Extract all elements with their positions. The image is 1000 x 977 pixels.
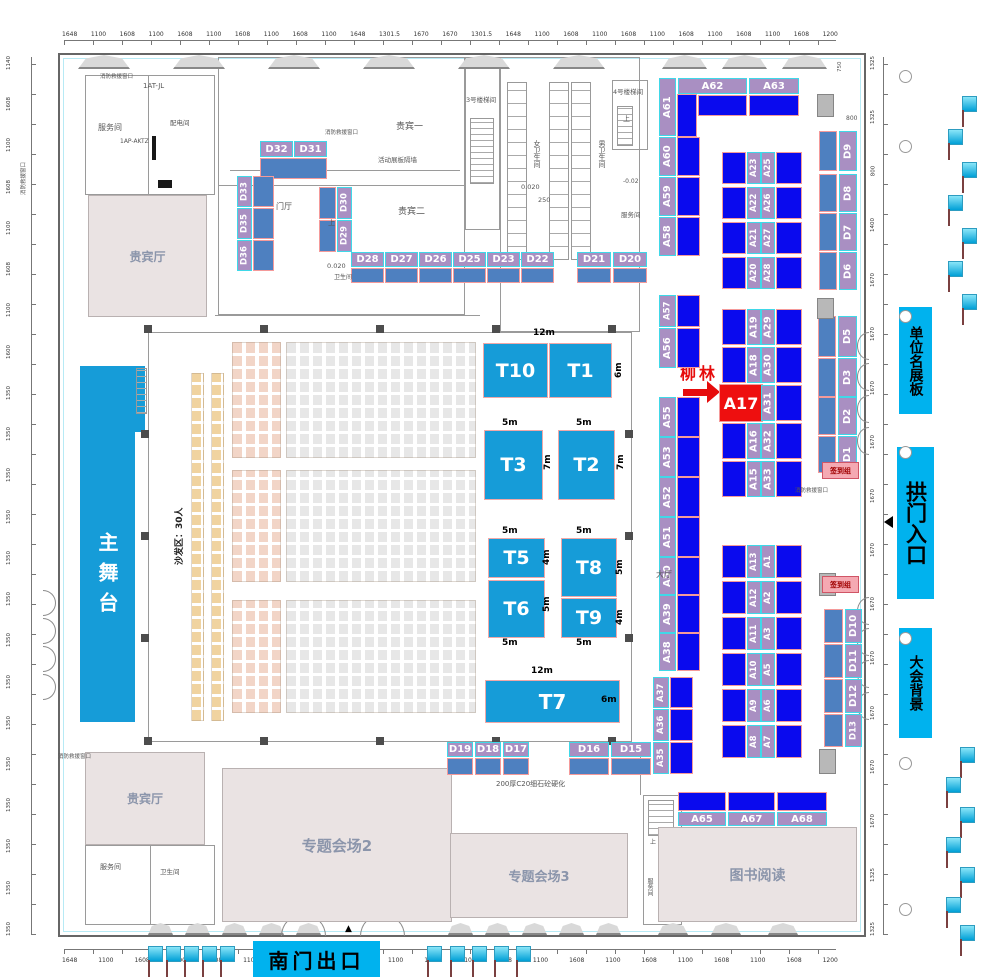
booth-A28[interactable]: A28 <box>761 257 775 289</box>
booth-A19[interactable]: A19 <box>747 309 761 345</box>
booth-fill <box>253 208 274 239</box>
booth-T5[interactable]: T5 <box>488 538 545 578</box>
annotation: 12m <box>533 329 555 338</box>
axis-bubble <box>899 632 912 645</box>
dimension-value: 1100 <box>264 31 279 38</box>
annotation: 服务间 <box>100 864 121 871</box>
booth-fill <box>722 152 746 184</box>
dimension-value: 1350 <box>6 386 12 400</box>
dimension-value: 1350 <box>6 839 12 853</box>
annotation: 女卫生间 <box>533 140 540 168</box>
special-hall-3-label: 专题会场3 <box>508 866 569 885</box>
sign-in-badge[interactable]: 签到组 <box>822 576 859 593</box>
annotation: 活动展板隔墙 <box>378 157 417 164</box>
dimension-value: 1100 <box>388 957 403 964</box>
booth-A25[interactable]: A25 <box>761 152 775 184</box>
dimension-value: 1608 <box>621 31 636 38</box>
arch-entrance-banner[interactable]: 拱门入口 <box>897 447 934 599</box>
booth-fill <box>722 257 746 289</box>
booth-A8[interactable]: A8 <box>747 725 761 758</box>
unit-board-banner: 单位名展板 <box>899 307 932 414</box>
booth-D17[interactable]: D17 <box>503 742 529 757</box>
booth-A1[interactable]: A1 <box>761 545 775 578</box>
dimension-value: 1400 <box>870 218 876 232</box>
wall-line <box>150 845 151 925</box>
booth-D11[interactable]: D11 <box>845 644 862 678</box>
booth-fill <box>722 545 746 578</box>
structural-column <box>625 532 633 540</box>
booth-fill <box>253 176 274 207</box>
dimension-value: 1350 <box>6 551 12 565</box>
booth-fill <box>677 557 700 595</box>
booth-fill <box>722 725 746 758</box>
seating-block <box>286 600 476 713</box>
booth-fill <box>722 309 746 345</box>
dimension-value: 1608 <box>177 31 192 38</box>
annotation: 5m <box>576 639 592 648</box>
booth-A21[interactable]: A21 <box>747 222 761 254</box>
annotation: 6m <box>601 696 617 705</box>
annotation: 5m <box>502 639 518 648</box>
dimension-value: 1100 <box>707 31 722 38</box>
dimension-value: 1301.5 <box>379 31 400 38</box>
booth-fill <box>351 268 384 283</box>
booth-fill <box>487 268 520 283</box>
booth-A20[interactable]: A20 <box>747 257 761 289</box>
booth-A5[interactable]: A5 <box>761 653 775 686</box>
booth-fill <box>670 677 693 708</box>
booth-D26[interactable]: D26 <box>419 252 452 267</box>
booth-fill <box>818 358 836 397</box>
dimension-value: 1350 <box>6 716 12 730</box>
dimension-value: 1600 <box>6 345 12 359</box>
booth-fill <box>319 187 336 219</box>
booth-fill <box>722 222 746 254</box>
main-stage-label: 主舞台 <box>93 532 122 622</box>
booth-A58[interactable]: A58 <box>659 217 676 256</box>
axis-bubble <box>899 903 912 916</box>
annotation: 上 <box>650 840 656 846</box>
annotation: 服务间 <box>646 878 652 896</box>
booth-fill <box>677 477 700 517</box>
booth-A65[interactable]: A65 <box>678 812 726 826</box>
annotation: 消防救援窗口 <box>795 489 828 495</box>
annotation: 3号楼梯间 <box>466 97 496 104</box>
flag-icon <box>200 946 216 977</box>
booth-fill <box>677 217 700 256</box>
booth-A13[interactable]: A13 <box>747 545 761 578</box>
dimension-value: 1608 <box>120 31 135 38</box>
special-hall-2: 专题会场2 <box>222 768 452 922</box>
annotation: ▲ <box>345 925 352 934</box>
booth-D27[interactable]: D27 <box>385 252 418 267</box>
booth-fill <box>776 545 802 578</box>
booth-fill <box>818 316 836 357</box>
dimension-value: 1670 <box>870 435 876 449</box>
booth-A6[interactable]: A6 <box>761 689 775 722</box>
booth-A15[interactable]: A15 <box>747 461 761 497</box>
booth-D31[interactable]: D31 <box>294 141 327 157</box>
annotation: 5m <box>616 559 625 575</box>
seating-block <box>286 342 476 458</box>
dimension-strip-top: 1648110016081100160811001608110016081100… <box>62 28 838 40</box>
booth-A56[interactable]: A56 <box>659 328 676 368</box>
booth-A55[interactable]: A55 <box>659 397 676 437</box>
dimension-value: 1670 <box>870 760 876 774</box>
booth-fill <box>818 397 836 435</box>
booth-fill <box>577 268 611 283</box>
booth-fill <box>677 137 700 176</box>
dimension-strip-right: 1325132580014001670167016701670167016701… <box>866 60 880 932</box>
annotation: 4m <box>616 609 625 625</box>
axis-bubble <box>899 140 912 153</box>
dimension-value: 1100 <box>91 31 106 38</box>
dimension-value: 1325 <box>870 110 876 124</box>
booth-fill <box>776 152 802 184</box>
seating-block <box>232 600 281 713</box>
dimension-value: 1670 <box>442 31 457 38</box>
annotation: 大厅 <box>656 571 672 579</box>
booth-fill <box>824 609 843 643</box>
booth-fill <box>776 617 802 650</box>
staircase <box>617 106 633 146</box>
annotation: 服务间 <box>621 212 641 219</box>
dimension-value: 1100 <box>534 31 549 38</box>
dimension-line-top <box>64 40 836 45</box>
annotation: 卫生间 <box>334 275 352 281</box>
booth-fill <box>819 213 837 251</box>
dimension-value: 1648 <box>350 31 365 38</box>
booth-A35[interactable]: A35 <box>653 742 669 774</box>
annotation: 750 <box>838 62 844 73</box>
booth-D3[interactable]: D3 <box>838 358 857 397</box>
booth-A57[interactable]: A57 <box>659 295 676 327</box>
dimension-value: 1670 <box>870 597 876 611</box>
annotation: 12m <box>531 667 553 676</box>
flag-icon <box>944 837 960 869</box>
flag-icon <box>514 946 530 977</box>
booth-A36[interactable]: A36 <box>653 709 669 741</box>
annotation: 门厅 <box>276 203 292 211</box>
flag-icon <box>960 228 976 260</box>
booth-A17[interactable]: A17 <box>719 384 763 422</box>
dimension-value: 1325 <box>870 56 876 70</box>
dimension-value: 1608 <box>6 97 12 111</box>
flag-icon <box>960 162 976 194</box>
axis-bubble <box>899 446 912 459</box>
booth-fill <box>569 758 609 775</box>
dimension-value: 1301.5 <box>471 31 492 38</box>
booth-fill <box>677 633 700 671</box>
dimension-value: 1608 <box>569 957 584 964</box>
annotation: 5m <box>543 596 552 612</box>
booth-fill <box>776 725 802 758</box>
flag-icon <box>146 946 162 977</box>
booth-D6[interactable]: D6 <box>839 252 857 290</box>
annotation: 5m <box>576 527 592 536</box>
booth-A33[interactable]: A33 <box>761 461 775 497</box>
vip-hall-bottom: 贵宾厅 <box>85 752 205 845</box>
booth-A16[interactable]: A16 <box>747 423 761 459</box>
flag-icon <box>960 96 976 128</box>
annotation: 卫生间 <box>160 869 180 876</box>
booth-fill <box>611 758 651 775</box>
dimension-value: 1350 <box>6 798 12 812</box>
booth-A10[interactable]: A10 <box>747 653 761 686</box>
booth-T9[interactable]: T9 <box>561 598 617 638</box>
booth-A30[interactable]: A30 <box>761 347 775 383</box>
booth-D23[interactable]: D23 <box>487 252 520 267</box>
dimension-value: 1670 <box>870 273 876 287</box>
seating-block <box>211 373 224 721</box>
booth-A3[interactable]: A3 <box>761 617 775 650</box>
annotation: 消防救援窗口 <box>58 755 91 761</box>
booth-fill <box>824 644 843 678</box>
booth-T10[interactable]: T10 <box>483 343 548 398</box>
booth-A37[interactable]: A37 <box>653 677 669 708</box>
axis-bubble <box>899 70 912 83</box>
booth-A52[interactable]: A52 <box>659 477 676 517</box>
booth-A60[interactable]: A60 <box>659 137 676 176</box>
booth-T1[interactable]: T1 <box>549 343 612 398</box>
booth-fill <box>722 581 746 614</box>
booth-fill <box>817 298 834 319</box>
booth-A9[interactable]: A9 <box>747 689 761 722</box>
booth-D29[interactable]: D29 <box>337 220 352 252</box>
booth-fill <box>776 257 802 289</box>
highlight-arrow <box>683 389 708 396</box>
booth-A38[interactable]: A38 <box>659 633 676 671</box>
structural-column <box>144 737 152 745</box>
dimension-value: 1670 <box>870 651 876 665</box>
booth-A39[interactable]: A39 <box>659 595 676 633</box>
dimension-value: 800 <box>870 166 876 177</box>
booth-fill <box>677 177 700 216</box>
flag-icon <box>946 195 962 227</box>
booth-fill <box>819 131 837 171</box>
booth-fill <box>475 758 501 775</box>
booth-A29[interactable]: A29 <box>761 309 775 345</box>
booth-D12[interactable]: D12 <box>845 679 862 713</box>
booth-fill <box>819 749 836 774</box>
booth-A67[interactable]: A67 <box>728 812 775 826</box>
flag-icon <box>960 294 976 326</box>
booth-D2[interactable]: D2 <box>838 397 857 435</box>
toilet-stalls <box>571 82 591 260</box>
flag-icon <box>492 946 508 977</box>
booth-A53[interactable]: A53 <box>659 437 676 477</box>
booth-fill <box>253 240 274 271</box>
booth-A62[interactable]: A62 <box>678 78 747 94</box>
annotation: 消防救援窗口 <box>100 75 133 81</box>
booth-D19[interactable]: D19 <box>447 742 473 757</box>
special-hall-2-label: 专题会场2 <box>302 835 372 856</box>
booth-D21[interactable]: D21 <box>577 252 611 267</box>
dimension-value: 1350 <box>6 510 12 524</box>
booth-D35[interactable]: D35 <box>237 208 252 239</box>
booth-A11[interactable]: A11 <box>747 617 761 650</box>
booth-D7[interactable]: D7 <box>839 213 857 251</box>
annotation: 4m <box>543 549 552 565</box>
dimension-value: 1350 <box>6 675 12 689</box>
dimension-strip-left: 1140160811001608110016081100160013501350… <box>2 60 16 932</box>
annotation: 配电间 <box>170 120 190 127</box>
dimension-value: 1648 <box>62 957 77 964</box>
main-stage[interactable]: 主舞台 <box>80 432 135 722</box>
sign-in-badge[interactable]: 签到组 <box>822 462 859 479</box>
structural-column <box>376 325 384 333</box>
book-reading-label: 图书阅读 <box>730 865 786 885</box>
booth-T3[interactable]: T3 <box>484 430 543 500</box>
staircase <box>136 368 147 414</box>
booth-D9[interactable]: D9 <box>839 131 857 171</box>
booth-fill <box>677 328 700 368</box>
flag-icon <box>448 946 464 977</box>
door-arc <box>43 674 56 700</box>
booth-A23[interactable]: A23 <box>747 152 761 184</box>
dimension-value: 1608 <box>235 31 250 38</box>
annotation: 消防救援窗口 <box>22 162 28 195</box>
booth-fill <box>419 268 452 283</box>
structural-column <box>492 325 500 333</box>
booth-A12[interactable]: A12 <box>747 581 761 614</box>
booth-fill <box>776 222 802 254</box>
booth-A18[interactable]: A18 <box>747 347 761 383</box>
flag-icon <box>944 777 960 809</box>
booth-D32[interactable]: D32 <box>260 141 293 157</box>
dimension-value: 1350 <box>6 468 12 482</box>
flag-icon <box>958 867 974 899</box>
booth-D20[interactable]: D20 <box>613 252 647 267</box>
booth-D18[interactable]: D18 <box>475 742 501 757</box>
annotation: 贵宾一 <box>396 123 423 132</box>
dimension-value: 1100 <box>6 138 12 152</box>
annotation: 0.020 <box>521 184 540 191</box>
dimension-value: 1670 <box>870 706 876 720</box>
booth-A26[interactable]: A26 <box>761 187 775 219</box>
annotation: -0.02 <box>623 179 639 185</box>
flag-icon <box>946 261 962 293</box>
dimension-value: 1100 <box>592 31 607 38</box>
booth-fill <box>677 94 697 137</box>
annotation: 6m <box>615 362 624 378</box>
dimension-value: 1325 <box>870 922 876 936</box>
booth-A63[interactable]: A63 <box>749 78 799 94</box>
booth-D13[interactable]: D13 <box>845 714 862 747</box>
booth-fill <box>776 653 802 686</box>
booth-D10[interactable]: D10 <box>845 609 862 643</box>
booth-fill <box>670 709 693 741</box>
exhibition-floor-plan: 1648110016081100160811001608110016081100… <box>0 0 1000 977</box>
flag-icon <box>958 747 974 779</box>
booth-D22[interactable]: D22 <box>521 252 554 267</box>
booth-fill <box>678 792 726 811</box>
booth-D33[interactable]: D33 <box>237 176 252 207</box>
booth-A7[interactable]: A7 <box>761 725 775 758</box>
wall-line <box>215 315 480 316</box>
door-arc <box>43 590 56 616</box>
booth-T6[interactable]: T6 <box>488 580 545 638</box>
dimension-value: 1100 <box>148 31 163 38</box>
booth-A32[interactable]: A32 <box>761 423 775 459</box>
booth-fill <box>776 347 802 383</box>
booth-T8[interactable]: T8 <box>561 538 617 597</box>
dimension-line-right <box>883 57 888 935</box>
annotation: 男卫生间 <box>598 140 605 168</box>
booth-fill <box>698 95 747 116</box>
door-arc <box>43 618 56 644</box>
booth-D15[interactable]: D15 <box>611 742 651 757</box>
dimension-value: 1608 <box>714 957 729 964</box>
booth-T7[interactable]: T7 <box>485 680 620 723</box>
booth-D30[interactable]: D30 <box>337 187 352 219</box>
annotation: 上 <box>623 116 630 123</box>
dimension-value: 1100 <box>650 31 665 38</box>
structural-column <box>141 430 149 438</box>
booth-A27[interactable]: A27 <box>761 222 775 254</box>
dimension-value: 1608 <box>786 957 801 964</box>
south-exit-banner[interactable]: 南门出口 <box>253 941 380 977</box>
axis-bubble <box>899 310 912 323</box>
dimension-value: 1100 <box>678 957 693 964</box>
booth-fill <box>677 295 700 327</box>
booth-D28[interactable]: D28 <box>351 252 384 267</box>
booth-fill <box>817 94 834 117</box>
annotation: 7m <box>544 454 553 470</box>
booth-fill <box>776 581 802 614</box>
dimension-value: 1608 <box>679 31 694 38</box>
booth-D8[interactable]: D8 <box>839 174 857 212</box>
booth-fill <box>722 689 746 722</box>
booth-fill <box>776 187 802 219</box>
booth-A2[interactable]: A2 <box>761 581 775 614</box>
structural-column <box>625 430 633 438</box>
dimension-value: 1100 <box>750 957 765 964</box>
booth-A61[interactable]: A61 <box>659 78 676 136</box>
equipment-block <box>152 136 156 160</box>
seating-block <box>232 470 281 582</box>
booth-D16[interactable]: D16 <box>569 742 609 757</box>
booth-A31[interactable]: A31 <box>761 385 775 421</box>
dimension-value: 1670 <box>413 31 428 38</box>
booth-A68[interactable]: A68 <box>777 812 827 826</box>
dimension-value: 1670 <box>870 489 876 503</box>
booth-fill <box>722 617 746 650</box>
booth-fill <box>453 268 486 283</box>
booth-fill <box>677 517 700 557</box>
booth-fill <box>613 268 647 283</box>
structural-column <box>625 634 633 642</box>
booth-D36[interactable]: D36 <box>237 240 252 271</box>
booth-T2[interactable]: T2 <box>558 430 615 500</box>
structural-column <box>608 325 616 333</box>
booth-A59[interactable]: A59 <box>659 177 676 216</box>
booth-fill <box>722 423 746 459</box>
structural-column <box>144 325 152 333</box>
dimension-value: 1670 <box>870 327 876 341</box>
annotation: 0.020 <box>327 263 346 270</box>
dimension-value: 1100 <box>533 957 548 964</box>
booth-A22[interactable]: A22 <box>747 187 761 219</box>
vip-hall-top-label: 贵宾厅 <box>129 248 165 265</box>
booth-D25[interactable]: D25 <box>453 252 486 267</box>
flag-icon <box>425 946 441 977</box>
annotation: 250 <box>538 197 550 204</box>
booth-A51[interactable]: A51 <box>659 517 676 557</box>
vip-hall-bottom-label: 贵宾厅 <box>127 790 163 807</box>
booth-D5[interactable]: D5 <box>838 316 857 357</box>
booth-fill <box>521 268 554 283</box>
